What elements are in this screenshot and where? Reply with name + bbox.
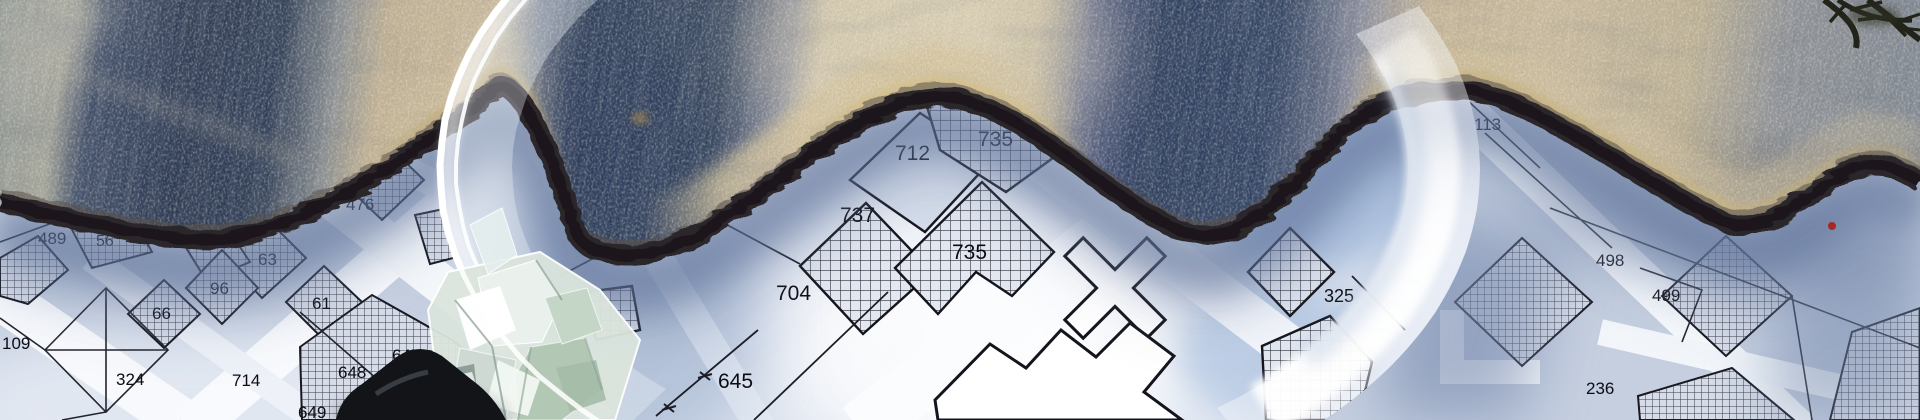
svg-text:499: 499 xyxy=(1652,286,1680,305)
svg-text:648: 648 xyxy=(338,363,366,382)
svg-text:714: 714 xyxy=(232,371,260,390)
svg-text:61: 61 xyxy=(312,294,331,313)
svg-text:236: 236 xyxy=(1586,379,1614,398)
svg-text:704: 704 xyxy=(776,282,811,305)
svg-text:649: 649 xyxy=(298,403,326,420)
svg-text:324: 324 xyxy=(116,370,144,389)
svg-text:109: 109 xyxy=(2,334,30,353)
svg-text:735: 735 xyxy=(952,241,987,264)
svg-text:645: 645 xyxy=(718,370,753,393)
